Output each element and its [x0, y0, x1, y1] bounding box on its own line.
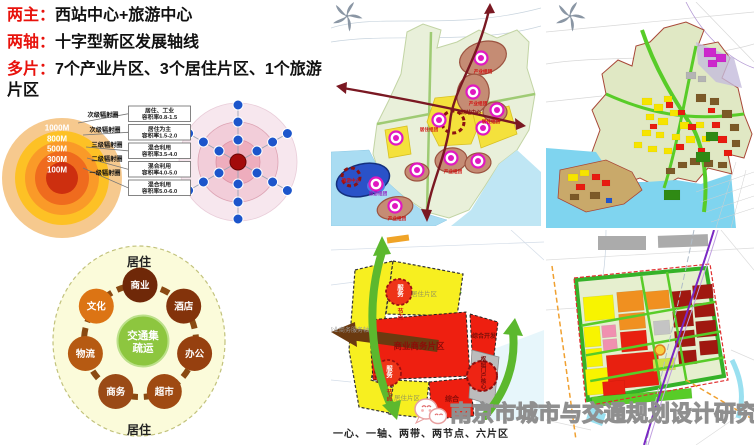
map-landuse-plan	[546, 2, 754, 228]
tier-label-4: 二级辐射圈	[92, 155, 123, 163]
far-boxes: 居住、工业 容积率0.8-1.5 居住为主 容积率1.5-2.0 混合利用 容积…	[129, 106, 191, 196]
tier-label-3: 三级辐射圈	[92, 141, 123, 149]
business-district-label: 商业商务片区	[393, 341, 445, 351]
far-box-1-use: 居住、工业	[145, 107, 174, 115]
comprehensive-dev-label: 综合开发	[472, 332, 496, 340]
station-marker	[655, 345, 665, 355]
watermark-text: 南京市城市与交通规划设计研究院	[450, 396, 754, 428]
header-text-1: 西站中心+旅游中心	[55, 7, 192, 24]
tourism-cluster-label: 旅游组团	[368, 190, 388, 197]
hub-node-shangye-label: 商业	[130, 280, 150, 292]
tier-label-5: 一级辐射圈	[90, 169, 121, 177]
service-node-1-bottom: 节点	[396, 307, 403, 321]
station-center-label: 西站中心	[461, 109, 481, 116]
industry-cluster-label-1: 产业组团	[474, 68, 493, 75]
header-label-1: 两主：	[7, 7, 55, 24]
hub-node-bangong-label: 办公	[185, 348, 205, 360]
hub-center-line1: 交通集	[127, 329, 159, 342]
header-row-1: 两主：西站中心+旅游中心	[7, 5, 331, 26]
hub-node-shangwu-label: 商务	[106, 386, 126, 398]
slide: 两主：西站中心+旅游中心 两轴：十字型新区发展轴线 多片：7个产业片区、3个居住…	[0, 0, 754, 447]
hub-node-chaoshi-label: 超市	[154, 386, 175, 398]
far-box-3-use: 混合利用	[148, 144, 171, 152]
tier-label-2: 次级辐射圈	[90, 126, 121, 134]
residential-cluster-label-1: 居住组团	[420, 126, 439, 133]
header-row-3: 多片：7个产业片区、3个居住片区、1个旅游片区	[7, 59, 331, 101]
far-box-1-far: 容积率0.8-1.5	[141, 113, 178, 121]
tourism-center-label: 旅游中心	[341, 177, 361, 184]
radiation-diagram: 1000M 800M 500M 300M 100M 次级辐射圈 次级辐射圈 三级…	[0, 101, 200, 241]
far-box-5-far: 容积率5.0-6.0	[141, 187, 177, 195]
far-box-4-far: 容积率4.0-5.0	[141, 169, 177, 177]
residential-area-label-1: 居住片区	[411, 289, 438, 298]
watermark: 南京市城市与交通规划设计研究院	[413, 396, 754, 428]
header-block: 两主：西站中心+旅游中心 两轴：十字型新区发展轴线 多片：7个产业片区、3个居住…	[7, 5, 331, 107]
tier-label-1: 次级辐射圈	[88, 111, 119, 119]
header-label-3: 多片：	[7, 61, 55, 78]
structure-caption: 一心、一轴、两带、两节点、六片区	[333, 425, 509, 440]
map-structure-plan: 产业组团 产业组团 产业组团 产业组团 居住组团 居住组团 西站中心 旅游中心 …	[331, 2, 541, 226]
far-box-4-use: 混合利用	[148, 162, 171, 170]
industry-cluster-label-4: 产业组团	[388, 215, 407, 222]
ring-label-500m: 500M	[47, 145, 67, 154]
hub-center-line2: 疏运	[133, 342, 154, 355]
hub-node-wenhua-label: 文化	[86, 301, 107, 313]
hub-label-bottom: 居住	[127, 422, 151, 437]
map-core-structure: 商业商务服务轴 商业商务片区 综合开发 综合 居住片区 居住片区 枢纽门户核心 …	[331, 230, 544, 420]
center-station-node	[230, 154, 246, 170]
ring-label-1000m: 1000M	[45, 124, 70, 133]
ring-label-300m: 300M	[47, 155, 67, 164]
wechat-icon	[413, 397, 447, 427]
transport-hub-diagram: 居住 居住 商业 酒店 办公 超市 商务 物流 文化 交通集 疏运	[40, 242, 245, 447]
ring-label-100m: 100M	[47, 166, 67, 175]
far-box-2-far: 容积率1.5-2.0	[141, 132, 177, 140]
ring-distance-labels: 1000M 800M 500M 300M 100M	[45, 124, 70, 175]
header-row-2: 两轴：十字型新区发展轴线	[7, 32, 331, 53]
ring-label-800m: 800M	[47, 135, 67, 144]
gray-block-2	[658, 234, 708, 248]
hub-node-jiudian-label: 酒店	[174, 301, 194, 313]
hub-label-top: 居住	[127, 254, 151, 269]
header-label-2: 两轴：	[7, 34, 55, 51]
gray-block-1	[598, 236, 646, 250]
industry-cluster-label-3: 产业组团	[444, 168, 463, 175]
header-text-2: 十字型新区发展轴线	[55, 34, 199, 51]
hub-node-wuliu-label: 物流	[76, 348, 96, 360]
far-box-3-far: 容积率3.5-4.0	[141, 150, 177, 158]
service-node-2-bottom: 节点	[385, 388, 392, 402]
axis-gray-label: 商业商务服务轴	[331, 326, 369, 334]
residential-cluster-label-2: 居住组团	[482, 118, 501, 125]
header-text-3: 7个产业片区、3个居住片区、1个旅游片区	[7, 61, 322, 99]
far-box-5-use: 混合利用	[148, 181, 171, 189]
industry-cluster-label-2: 产业组团	[469, 100, 488, 107]
far-box-2-use: 居住为主	[148, 125, 171, 133]
